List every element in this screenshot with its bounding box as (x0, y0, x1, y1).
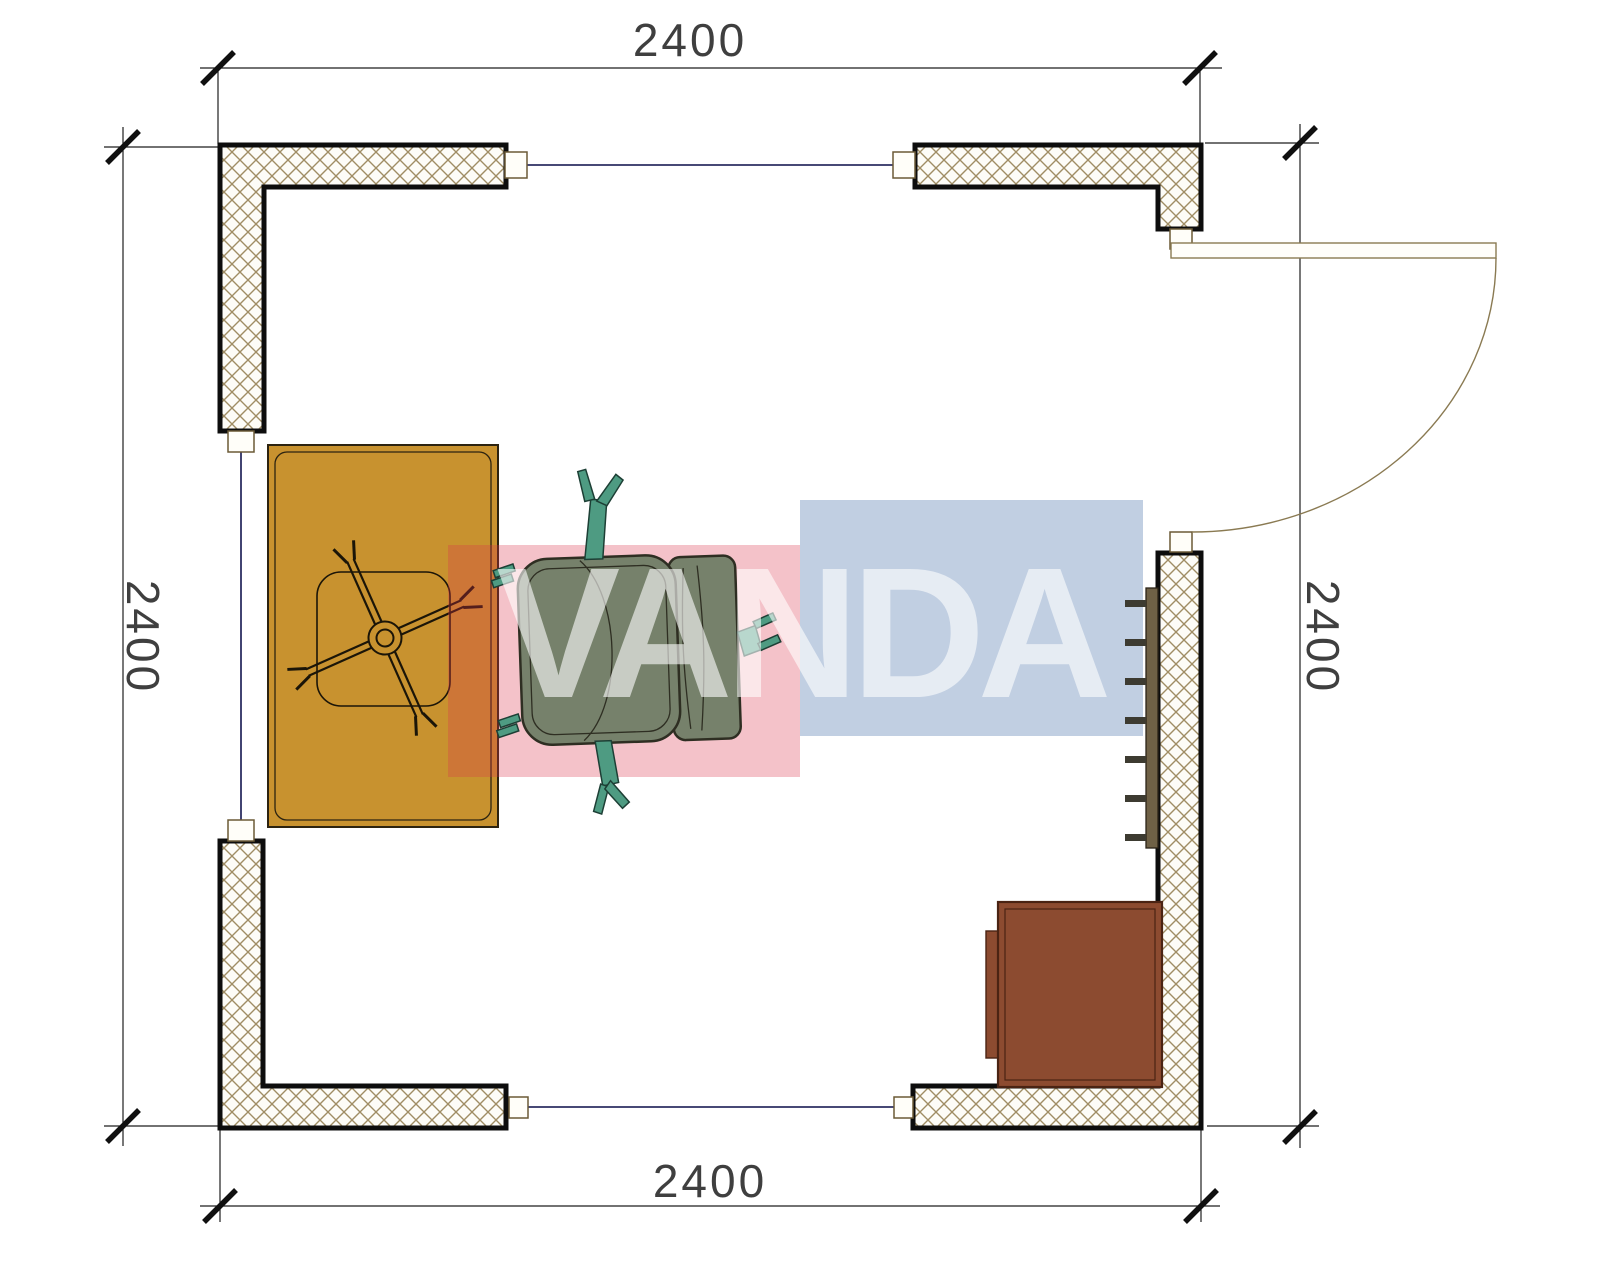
window-jamb (228, 431, 254, 452)
radiator-tick (1125, 756, 1146, 763)
radiator-tick (1125, 834, 1146, 841)
door-leaf (1171, 243, 1496, 258)
dimension-label-right: 2400 (1297, 580, 1349, 694)
radiator-tick (1125, 717, 1146, 724)
window-jamb (509, 1097, 528, 1118)
wall-top-right (915, 145, 1201, 229)
cabinet (986, 902, 1162, 1087)
dimension-label-top: 2400 (633, 14, 747, 66)
window-jamb (228, 820, 254, 841)
radiator-tick (1125, 795, 1146, 802)
floor-plan-drawing: 2400 2400 2400 2400 (0, 0, 1600, 1280)
floor-plan-canvas: 2400 2400 2400 2400 (0, 0, 1600, 1280)
wall-top-left (220, 145, 506, 431)
window-jamb (893, 152, 915, 178)
radiator-tick (1125, 639, 1146, 646)
dimension-label-left: 2400 (117, 580, 169, 694)
radiator-tick (1125, 600, 1146, 607)
dimension-label-bottom: 2400 (653, 1155, 767, 1207)
wall-bottom-left (220, 841, 506, 1128)
watermark-text: VANDA (496, 530, 1107, 737)
window-jamb (505, 152, 527, 178)
cabinet-handle (986, 931, 998, 1058)
door-swing (1170, 229, 1496, 552)
radiator-tick (1125, 678, 1146, 685)
door-arc (1192, 258, 1496, 532)
window-jamb (894, 1097, 913, 1118)
door-jamb (1170, 532, 1192, 552)
